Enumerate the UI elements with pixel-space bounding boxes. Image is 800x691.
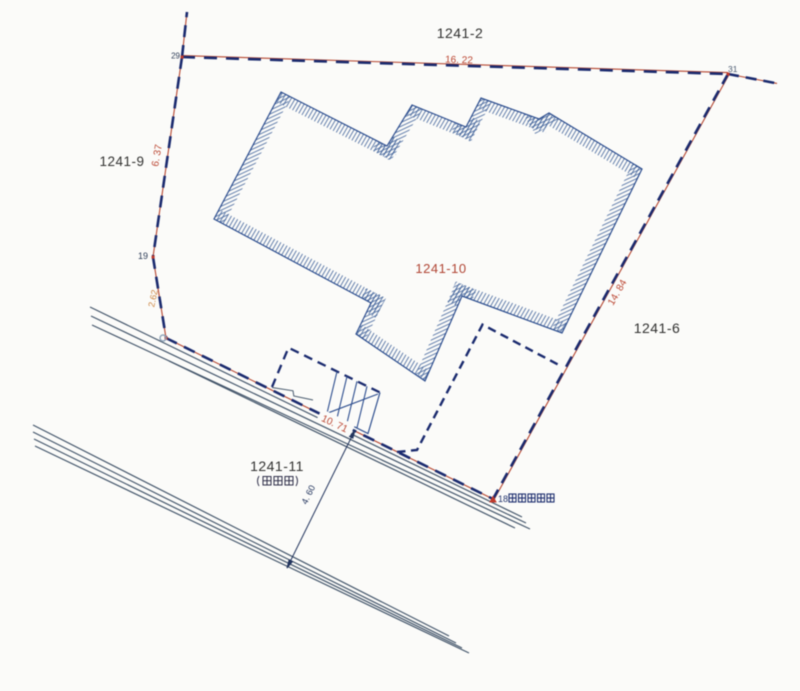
svg-text:19: 19 [138,251,148,261]
svg-text:1241-10: 1241-10 [415,261,466,276]
svg-text:16. 22: 16. 22 [445,55,474,67]
svg-text:1241-11: 1241-11 [250,458,304,474]
svg-text:1241-9: 1241-9 [99,154,144,169]
svg-text:1241-2: 1241-2 [437,25,484,41]
svg-text:18: 18 [498,494,508,504]
svg-text:29: 29 [171,52,180,61]
svg-text:1241-6: 1241-6 [634,320,681,336]
svg-text:31: 31 [728,64,738,74]
